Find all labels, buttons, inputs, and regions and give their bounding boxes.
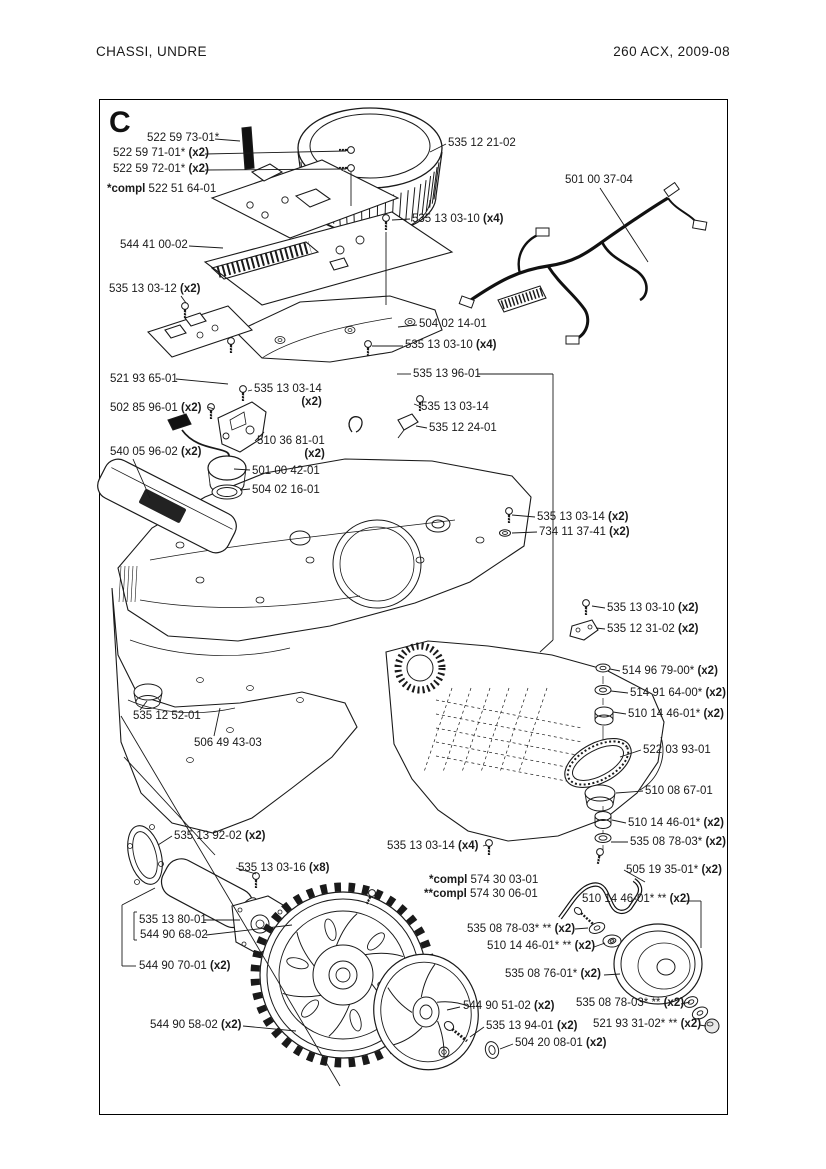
part-label: 535 08 78-03* ** (x2) (576, 997, 684, 1010)
part-number: 505 19 35-01* (626, 864, 698, 876)
part-label: 535 13 96-01 (413, 368, 481, 381)
part-label: 522 03 93-01 (643, 744, 711, 757)
part-label: 521 93 65-01 (110, 373, 178, 386)
part-number: 535 12 31-02 (607, 623, 675, 635)
part-number: 544 90 51-02 (463, 1000, 531, 1012)
part-number: 504 02 14-01 (419, 318, 487, 330)
part-label: 535 13 03-14 (421, 401, 489, 414)
part-qty: (x2) (218, 1019, 242, 1031)
part-qty: (x2) (577, 968, 601, 980)
part-qty: (x2) (702, 836, 726, 848)
part-label: 540 05 96-02 (x2) (110, 446, 201, 459)
part-qty: (x4) (480, 213, 504, 225)
part-label: 535 13 03-14 (x4) (387, 840, 478, 853)
part-number: 535 13 03-14 (421, 401, 489, 413)
part-number: 522 03 93-01 (643, 744, 711, 756)
part-number: 535 13 94-01 (486, 1020, 554, 1032)
part-number: 514 96 79-00* (622, 665, 694, 677)
manual-page: { "page": { "header_left": "CHASSI, UNDR… (0, 0, 826, 1169)
part-label: 535 13 92-02 (x2) (174, 830, 265, 843)
part-qty: (x2) (185, 147, 209, 159)
part-number: 535 13 03-14 (537, 511, 605, 523)
part-label: 535 12 52-01 (133, 710, 201, 723)
part-qty: (x2) (606, 526, 630, 538)
part-number: 535 08 76-01* (505, 968, 577, 980)
part-qty: (x2) (531, 1000, 555, 1012)
part-label: 501 00 42-01 (252, 465, 320, 478)
part-number: 510 36 81-01 (257, 435, 325, 447)
part-qty: (x2) (185, 163, 209, 175)
part-number: 535 12 21-02 (448, 137, 516, 149)
part-number: 522 59 73-01* (147, 132, 219, 144)
part-number: 535 13 03-12 (109, 283, 177, 295)
part-number: 535 13 96-01 (413, 368, 481, 380)
part-number: 574 30 03-01 (471, 874, 539, 886)
part-label: 514 91 64-00* (x2) (630, 687, 726, 700)
part-number: 521 93 31-02* ** (593, 1018, 677, 1030)
part-qty: (x2) (551, 923, 575, 935)
part-number: 535 08 78-03* (630, 836, 702, 848)
part-qty: (x4) (473, 339, 497, 351)
part-number: 535 08 78-03* ** (467, 923, 551, 935)
part-qty: (x2) (254, 396, 322, 409)
part-number: 506 49 43-03 (194, 737, 262, 749)
part-qty: (x2) (700, 708, 724, 720)
part-number: 510 14 46-01* ** (487, 940, 571, 952)
part-qty: (x2) (694, 665, 718, 677)
part-label: 535 08 78-03* ** (x2) (467, 923, 575, 936)
part-qty: (x2) (583, 1037, 607, 1049)
part-label: 535 08 78-03* (x2) (630, 836, 726, 849)
part-number: 501 00 42-01 (252, 465, 320, 477)
part-number: 535 13 92-02 (174, 830, 242, 842)
part-qty: (x2) (702, 687, 726, 699)
part-number: 514 91 64-00* (630, 687, 702, 699)
part-label: 535 13 03-10 (x2) (607, 602, 698, 615)
part-number: 544 90 70-01 (139, 960, 207, 972)
part-number: 535 08 78-03* ** (576, 997, 660, 1009)
part-number: 510 14 46-01* (628, 708, 700, 720)
part-number: 535 13 03-14 (254, 383, 322, 395)
part-number: 574 30 06-01 (470, 888, 538, 900)
part-label: 544 90 70-01 (x2) (139, 960, 230, 973)
part-label: 522 59 73-01* (147, 132, 219, 145)
part-label: 544 41 00-02 (120, 239, 188, 252)
compl-prefix: *compl (429, 874, 471, 886)
part-number: 544 41 00-02 (120, 239, 188, 251)
part-qty: (x2) (178, 402, 202, 414)
part-qty: (x2) (660, 997, 684, 1009)
part-label: 535 13 03-14 (x2) (254, 383, 322, 409)
part-number: 522 59 71-01* (113, 147, 185, 159)
part-qty: (x2) (677, 1018, 701, 1030)
part-number: 540 05 96-02 (110, 446, 178, 458)
part-number: 522 51 64-01 (149, 183, 217, 195)
part-qty: (x2) (242, 830, 266, 842)
part-number: 510 14 46-01* (628, 817, 700, 829)
section-letter: C (109, 106, 131, 140)
part-label: 535 12 21-02 (448, 137, 516, 150)
part-label: 521 93 31-02* ** (x2) (593, 1018, 701, 1031)
part-number: 535 13 80-01 (139, 914, 207, 926)
part-qty: (x2) (571, 940, 595, 952)
part-number: 734 11 37-41 (539, 526, 606, 538)
part-label: 535 12 31-02 (x2) (607, 623, 698, 636)
part-number: 504 02 16-01 (252, 484, 320, 496)
part-qty: (x2) (698, 864, 722, 876)
part-qty: (x2) (675, 602, 699, 614)
part-label: 544 90 58-02 (x2) (150, 1019, 241, 1032)
part-label: *compl 574 30 03-01 (429, 874, 538, 887)
part-number: 535 12 52-01 (133, 710, 201, 722)
part-label: 734 11 37-41 (x2) (539, 526, 630, 539)
part-number: 535 13 03-10 (607, 602, 675, 614)
part-number: 544 90 58-02 (150, 1019, 218, 1031)
part-label: 506 49 43-03 (194, 737, 262, 750)
part-label: 504 20 08-01 (x2) (515, 1037, 606, 1050)
part-label: 522 59 71-01* (x2) (113, 147, 209, 160)
part-label: 535 13 03-10 (x4) (412, 213, 503, 226)
part-label: 501 00 37-04 (565, 174, 633, 187)
part-number: 501 00 37-04 (565, 174, 633, 186)
part-qty: (x2) (178, 446, 202, 458)
compl-prefix: **compl (424, 888, 470, 900)
compl-prefix: *compl (107, 183, 149, 195)
part-qty: (x2) (257, 448, 325, 461)
part-number: 521 93 65-01 (110, 373, 178, 385)
part-number: 510 14 46-01* ** (582, 893, 666, 905)
part-label: 522 59 72-01* (x2) (113, 163, 209, 176)
part-qty: (x2) (207, 960, 231, 972)
part-qty: (x8) (306, 862, 330, 874)
part-label: 510 14 46-01* (x2) (628, 817, 724, 830)
part-label: 535 12 24-01 (429, 422, 497, 435)
part-qty: (x2) (675, 623, 699, 635)
part-label: 535 13 94-01 (x2) (486, 1020, 577, 1033)
part-label: 535 13 03-14 (x2) (537, 511, 628, 524)
part-number: 535 13 03-16 (238, 862, 306, 874)
part-number: 510 08 67-01 (645, 785, 713, 797)
part-label: 504 02 16-01 (252, 484, 320, 497)
part-number: 544 90 68-02 (140, 929, 208, 941)
part-label: 544 90 51-02 (x2) (463, 1000, 554, 1013)
part-label: 514 96 79-00* (x2) (622, 665, 718, 678)
part-label: **compl 574 30 06-01 (424, 888, 538, 901)
part-qty: (x2) (666, 893, 690, 905)
part-label: 535 13 80-01 (139, 914, 207, 927)
part-qty: (x2) (700, 817, 724, 829)
part-number: 502 85 96-01 (110, 402, 178, 414)
part-number: 522 59 72-01* (113, 163, 185, 175)
part-label: 544 90 68-02 (140, 929, 208, 942)
part-label: *compl 522 51 64-01 (107, 183, 216, 196)
part-label: 535 13 03-12 (x2) (109, 283, 200, 296)
part-label: 535 13 03-16 (x8) (238, 862, 329, 875)
part-label: 510 08 67-01 (645, 785, 713, 798)
part-label: 510 14 46-01* ** (x2) (487, 940, 595, 953)
part-label: 535 08 76-01* (x2) (505, 968, 601, 981)
part-number: 504 20 08-01 (515, 1037, 583, 1049)
part-label: 504 02 14-01 (419, 318, 487, 331)
part-qty: (x2) (554, 1020, 578, 1032)
part-number: 535 13 03-10 (412, 213, 480, 225)
part-label: 505 19 35-01* (x2) (626, 864, 722, 877)
part-number: 535 13 03-10 (405, 339, 473, 351)
part-label: 510 14 46-01* ** (x2) (582, 893, 690, 906)
part-number: 535 12 24-01 (429, 422, 497, 434)
part-qty: (x4) (455, 840, 479, 852)
part-qty: (x2) (177, 283, 201, 295)
part-label: 502 85 96-01 (x2) (110, 402, 201, 415)
part-qty: (x2) (605, 511, 629, 523)
part-label: 535 13 03-10 (x4) (405, 339, 496, 352)
part-number: 535 13 03-14 (387, 840, 455, 852)
part-label: 510 14 46-01* (x2) (628, 708, 724, 721)
part-label: 510 36 81-01 (x2) (257, 435, 325, 461)
